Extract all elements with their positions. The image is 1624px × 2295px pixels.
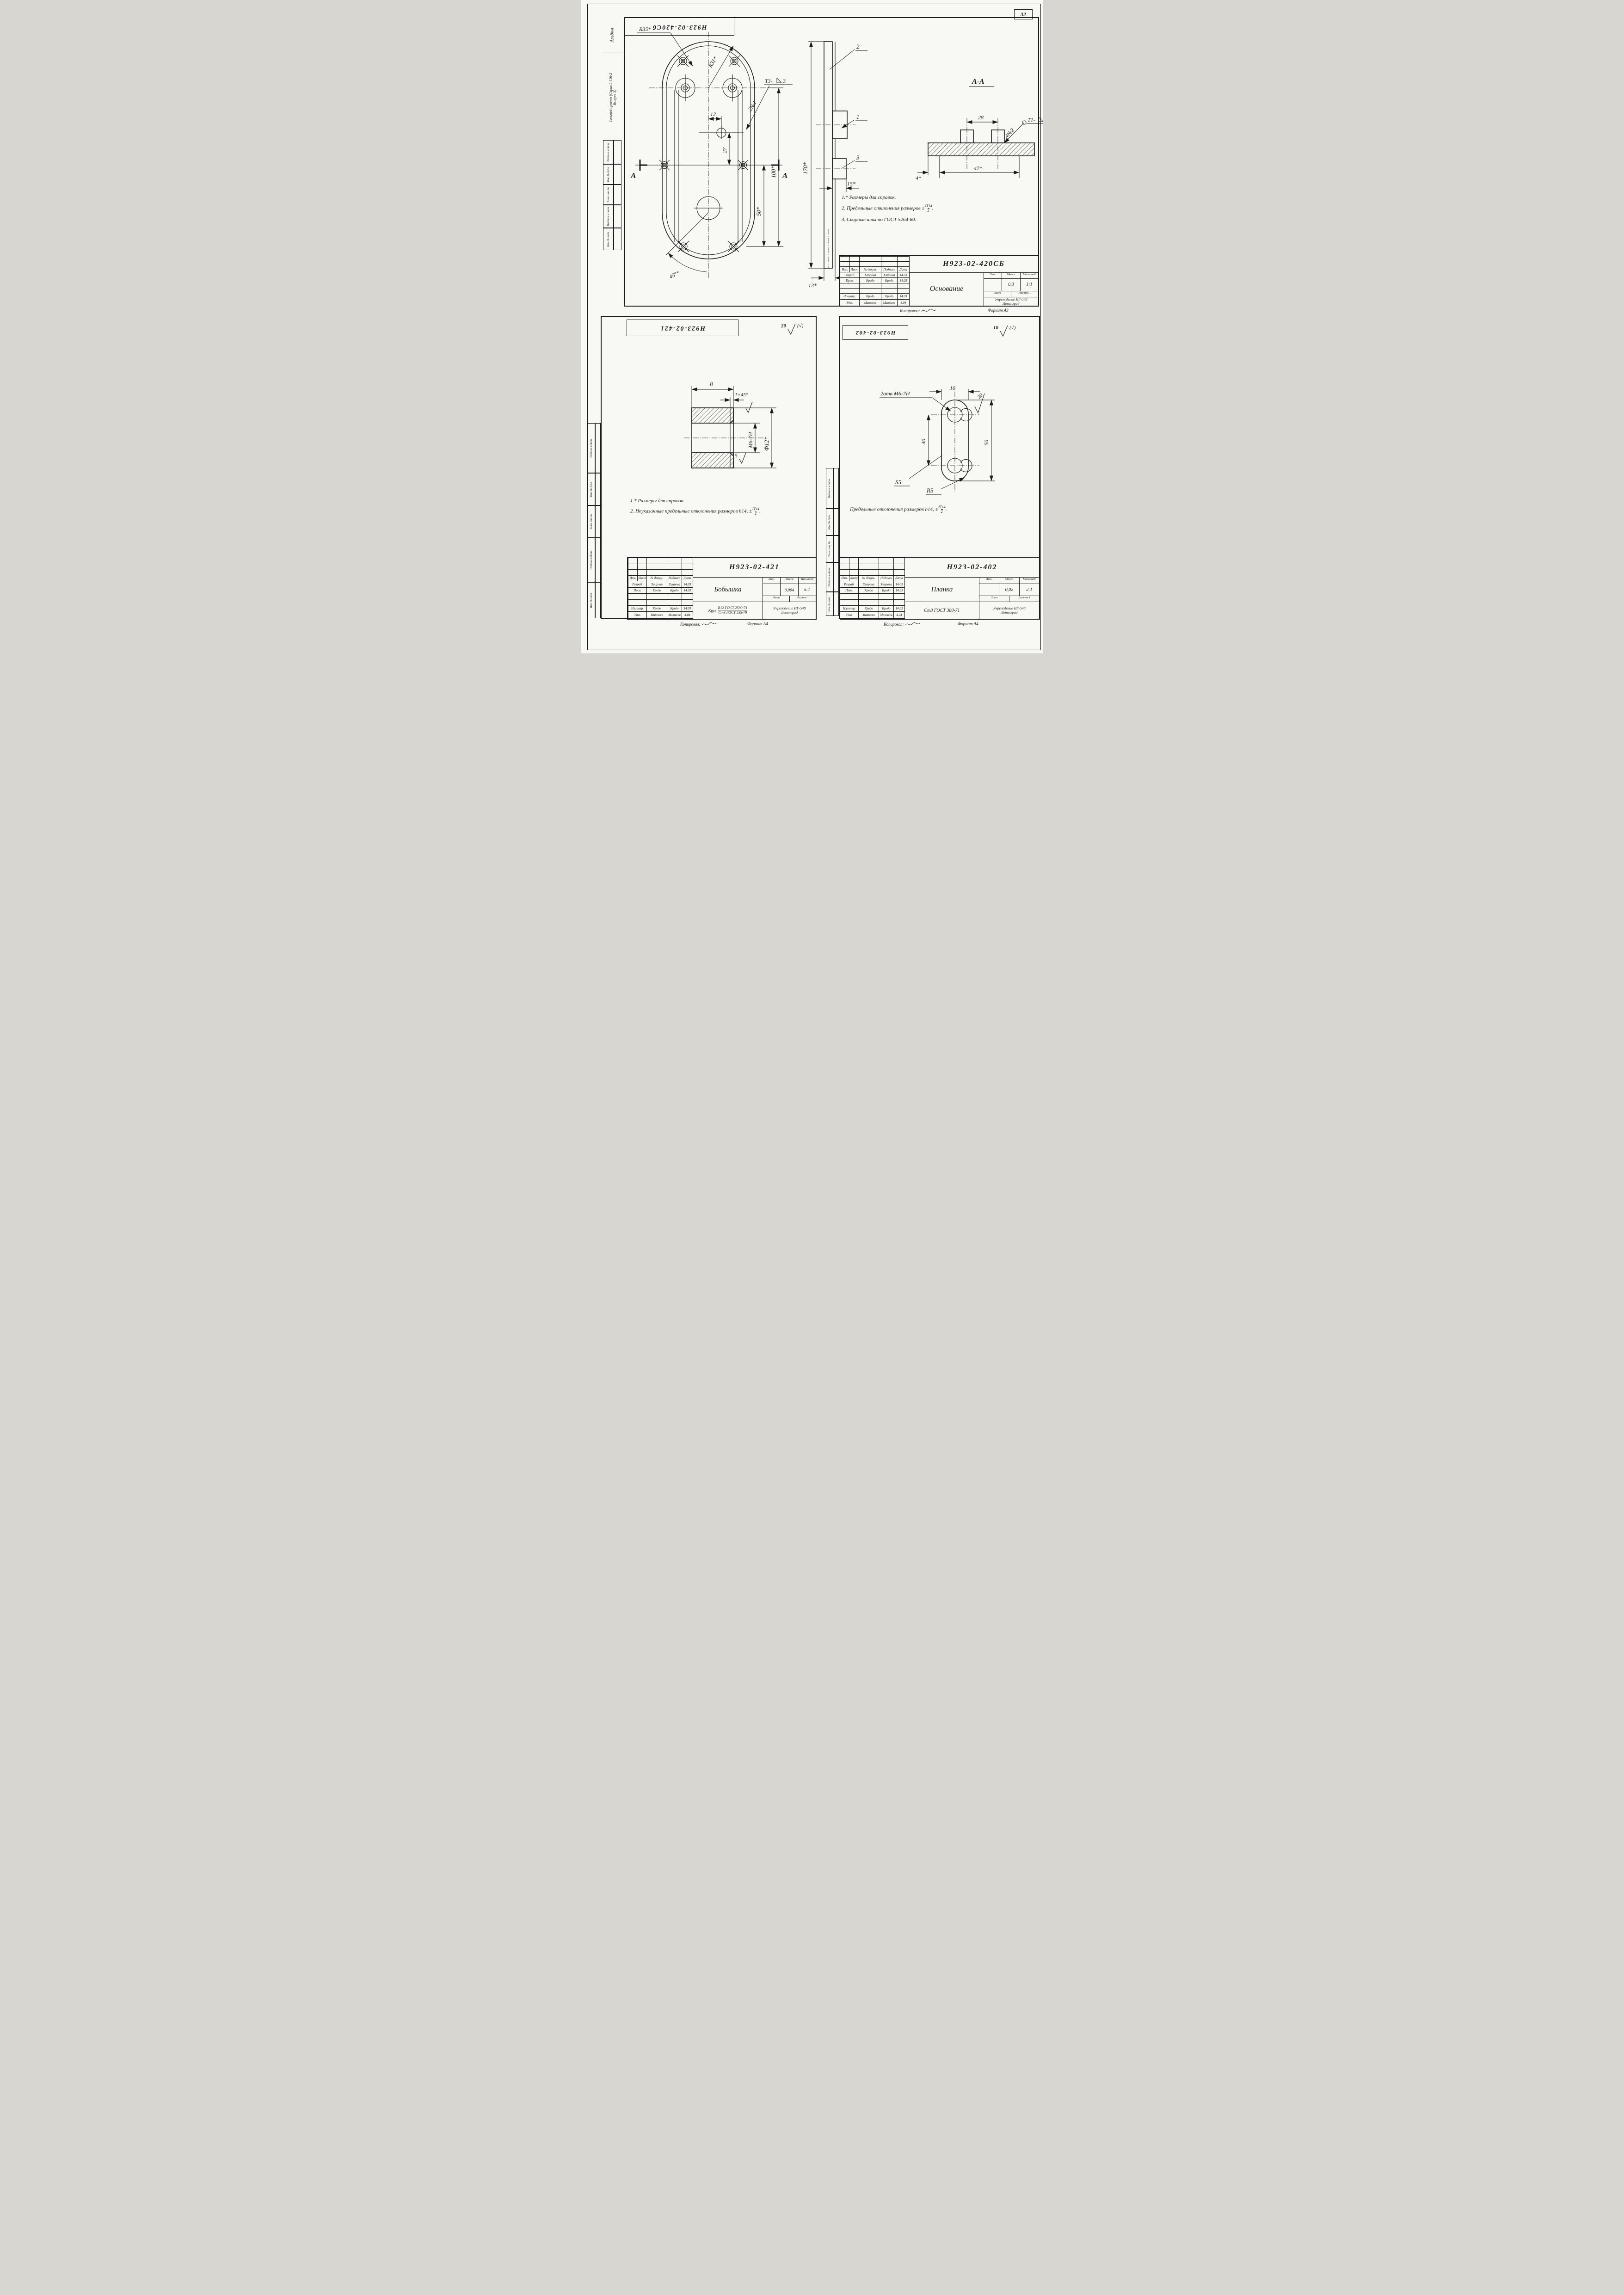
callout-2: 2 (856, 43, 860, 50)
note-planka: Предельные отклонения размеров h14, ±JT1… (850, 505, 947, 514)
view-plan-osnovanie: R35* R31* 12 27 (630, 25, 796, 294)
frame-planka: Н923-02-402 10 (√) 2отв.М6-7Н (839, 316, 1040, 619)
dim-100: 100* (770, 166, 777, 178)
view-section-aa: А-А 28 4№2 Т1- 3 4* (912, 74, 1043, 180)
dim-s5: S5 (895, 479, 902, 486)
titleblock-planka: Изм.Лист№ докум.ПодписьДата Разраб.Хаиро… (840, 557, 1040, 620)
doc-number-3: Н923-02-402 (905, 558, 1039, 578)
doc-number: Н923-02-420СБ (910, 256, 1038, 273)
roughness-bobyshka: 20 (√) (781, 323, 803, 335)
sidebar-top-cell-3: Подпись и дата (603, 205, 614, 228)
stamp-bobyshka-text: Н923-02-421 (660, 324, 705, 332)
sidebar-top-cell-0: Подпись и дата (603, 140, 614, 164)
titleblock-signatures: Изм.Лист№ докум.ПодписьДата Разраб.Хаиро… (840, 256, 910, 306)
view-side-osnovanie: 170* 15* 13* 2 1 3 (797, 25, 871, 294)
dim-170: 170* (802, 162, 809, 175)
dim-13: 13* (808, 282, 817, 289)
dim-8: 8 (710, 381, 713, 388)
lit-label: Лит. (984, 273, 1002, 278)
sidebar-br-cell-0: Подпись и дата (826, 468, 833, 509)
material-2: Круг В12 ГОСТ 2590-71Ст3 ГОСТ 535-79 (693, 602, 763, 619)
notes-bobyshka: 1.* Размеры для справок. 2. Неуказанные … (630, 498, 761, 516)
sidebar-br-box-4 (833, 592, 839, 616)
dim-50p: 50 (983, 440, 990, 445)
sidebar-br-box-1 (833, 509, 839, 535)
sidebar-top-box-0 (614, 140, 621, 164)
callout-1: 1 (856, 113, 860, 120)
sidebar-top-box-3 (614, 205, 621, 228)
dim-40: 40 (920, 439, 927, 444)
signature-squiggle (921, 308, 937, 314)
dim-5: 5 (735, 452, 738, 459)
sheet-label: Лист (984, 291, 1011, 297)
section-letter-right: А (782, 171, 787, 180)
doc-number-2: Н923-02-421 (693, 558, 816, 578)
signature-squiggle-3 (905, 621, 921, 627)
titleblock-bobyshka: Изм.Лист№ докум.ПодписьДата Разраб.Хаиро… (627, 557, 817, 620)
weld-t1-label: Т1- (1027, 117, 1035, 123)
organization-2: Учреждение ИГ-548Ленинград (763, 602, 816, 619)
dim-47: 47* (974, 165, 982, 172)
part-name-3: Планка (905, 578, 979, 602)
material-3: Ст3 ГОСТ 380-71 (905, 602, 979, 619)
sidebar-bl-box-2 (595, 505, 601, 538)
stamp-bobyshka: Н923-02-421 (627, 320, 738, 336)
signature-squiggle-2 (701, 621, 717, 627)
weld-t3-num: 3 (782, 78, 786, 84)
sidebar-top-cell-4: Инв. № подл. (603, 228, 614, 250)
sidebar-br-box-3 (833, 562, 839, 592)
copied-line-1: Копировал: (900, 308, 937, 314)
drawing-sheet: 32 Альбом Типовой проект (Серия 5.416-2 … (581, 0, 1043, 653)
sidebar-bl-box-1 (595, 473, 601, 505)
frame-osnovanie: Н923-02-420Сб (624, 17, 1039, 307)
callout-3: 3 (856, 154, 860, 161)
frame-bobyshka: Н923-02-421 20 (√) 8 (601, 316, 817, 619)
dim-thread: М6-7Н (747, 431, 754, 449)
format-label-2: Формат А4 (747, 621, 768, 626)
dim-15: 15* (847, 180, 855, 187)
format-label-1: Формат А3 (988, 308, 1009, 313)
note-2: 2. Предельные отклонения размеров ±JT142… (842, 204, 933, 213)
project-label: Типовой проект (Серия 5.416-2 Выпуск 3) (601, 55, 624, 141)
scale-label: Масштаб (1021, 273, 1038, 278)
note-b2: 2. Неуказанные предельные отклонения раз… (630, 507, 761, 516)
sidebar-bl-cell-0: Подпись и дата (588, 423, 595, 473)
sidebar-bl-cell-4: Инв. № подл. (588, 582, 595, 618)
scale-value-2: 5:1 (799, 584, 816, 596)
mass-label: Масса (1002, 273, 1020, 278)
organization-3: Учреждение ИГ-548Ленинград (979, 602, 1039, 619)
sidebar-br-cell-2: Взам. инв. № (826, 535, 833, 562)
tolerance-fraction: JT142 (925, 204, 932, 213)
sidebar-br-box-2 (833, 535, 839, 562)
sidebar-bl-cell-1: Инв. № дубл. (588, 473, 595, 505)
copied-line-3: Копировал: (884, 621, 921, 627)
dim-12: 12 (710, 111, 716, 117)
format-label-3: Формат А4 (958, 621, 978, 626)
titleblock-signatures-2: Изм.Лист№ докум.ПодписьДата Разраб.Хаиро… (628, 558, 693, 619)
project-line2: Выпуск 3) (613, 73, 617, 123)
album-label: Альбом (601, 18, 623, 52)
dim-holes: 2отв.М6-7Н (880, 390, 910, 397)
sidebar-br-cell-4: Инв. № подл. (826, 592, 833, 616)
sidebar-top-box-1 (614, 164, 621, 185)
dim-10: 10 (950, 385, 955, 391)
mass-value: 0,3 (1002, 279, 1020, 291)
section-title: А-А (972, 78, 984, 86)
dim-4: 4* (916, 175, 921, 181)
view-planka: 2отв.М6-7Н 10 20 40 50 S5 (877, 386, 1011, 497)
section-letter-left: А (630, 171, 636, 180)
part-name-2: Бобышка (693, 578, 763, 602)
stamp-planka-text: Н923-02-402 (855, 329, 895, 336)
weld-t3-label: Т3- (765, 78, 773, 84)
sidebar-bl-cell-2: Взам. инв. № (588, 505, 595, 538)
titleblock-signatures-3: Изм.Лист№ докум.ПодписьДата Разраб.Хаиро… (840, 558, 905, 619)
note-1: 1.* Размеры для справок. (842, 195, 933, 200)
sidebar-top-box-4 (614, 228, 621, 250)
mass-value-2: 0,004 (781, 584, 798, 596)
mass-value-3: 0,02 (999, 584, 1019, 596)
sidebar-bl-cell-3: Подпись и дата (588, 538, 595, 582)
project-line1: Типовой проект (Серия 5.416-2 (609, 73, 613, 123)
sheets-label: Листов 1 (1011, 291, 1038, 297)
titleblock-osnovanie: Изм.Лист№ докум.ПодписьДата Разраб.Хаиро… (839, 255, 1039, 307)
dim-r5: R5 (926, 487, 934, 494)
sidebar-top-cell-2: Взам. инв. № (603, 185, 614, 205)
organization: Учреждение ИГ-548Ленинград (984, 297, 1038, 306)
sidebar-bl-box-0 (595, 423, 601, 473)
note-3: 3. Сварные швы по ГОСТ 5264-80. (842, 217, 933, 222)
dim-45deg: 45°* (668, 270, 681, 280)
weld-qty-2: 4№2 (1003, 127, 1015, 139)
dim-f12: Ф12* (763, 437, 770, 451)
roughness-check-icon-2 (999, 325, 1009, 337)
stamp-planka: Н923-02-402 (843, 325, 908, 340)
dim-50: 50* (755, 207, 762, 216)
sidebar-br-box-0 (833, 468, 839, 509)
sidebar-top-box-2 (614, 185, 621, 205)
scale-value: 1:1 (1021, 279, 1038, 291)
dim-r35: R35* (639, 26, 651, 32)
dim-chamfer: 1×45° (735, 392, 748, 398)
dim-r20: 20 (977, 393, 984, 400)
dim-27: 27 (721, 147, 728, 153)
sidebar-bl-box-4 (595, 582, 601, 618)
roughness-planka: 10 (√) (993, 325, 1015, 337)
part-name: Основание (910, 273, 984, 306)
dim-28: 28 (978, 114, 984, 121)
weld-qty-1: 2№1 (747, 99, 758, 112)
roughness-check-icon (787, 323, 796, 335)
sidebar-br-cell-1: Инв. № дубл. (826, 509, 833, 535)
view-bobyshka-section: 8 1×45° М6-7Н 5 Ф12* (680, 369, 787, 489)
note-b1: 1.* Размеры для справок. (630, 498, 761, 504)
sidebar-br-cell-3: Подпись и дата (826, 562, 833, 592)
sidebar-bl-box-3 (595, 538, 601, 582)
scale-value-3: 2:1 (1020, 584, 1039, 596)
copied-line-2: Копировал: (680, 621, 717, 627)
notes-osnovanie: 1.* Размеры для справок. 2. Предельные о… (842, 195, 933, 222)
sidebar-top-cell-1: Инв. № дубл. (603, 164, 614, 185)
